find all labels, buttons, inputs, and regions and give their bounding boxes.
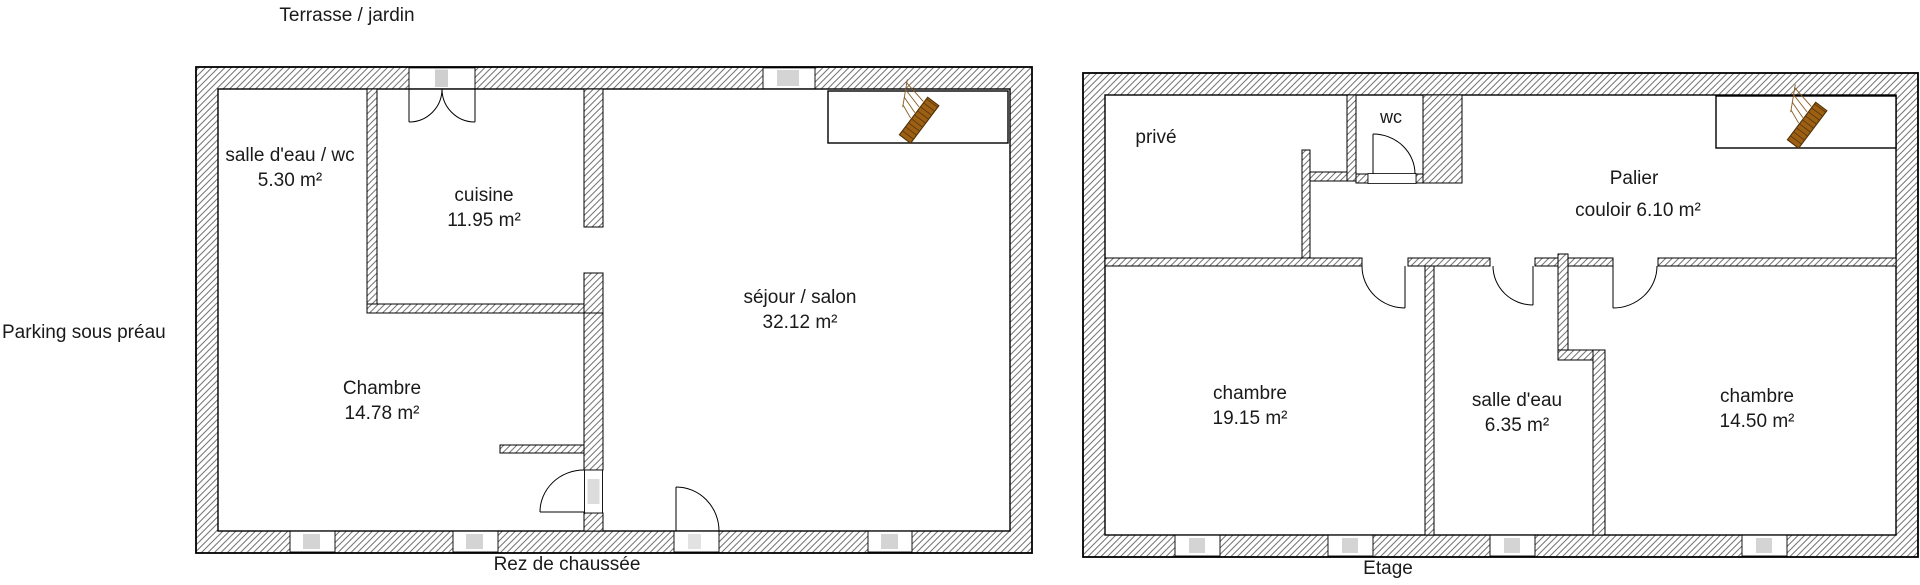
upper-floor-plan xyxy=(1083,73,1918,557)
window xyxy=(290,531,335,552)
wall xyxy=(1347,95,1356,181)
wall xyxy=(1302,150,1310,262)
wall xyxy=(1105,258,1362,266)
window xyxy=(1328,535,1373,556)
ground-floor-caption: Rez de chaussée xyxy=(494,552,641,577)
window xyxy=(1175,535,1220,556)
room-area: couloir 6.10 m² xyxy=(1575,200,1701,221)
wall xyxy=(584,89,603,227)
room-label-bedroom-gf: Chambre 14.78 m² xyxy=(343,376,421,426)
wall xyxy=(367,304,603,313)
floor-plan-page: Terrasse / jardin Parking sous préau Rez… xyxy=(0,0,1920,585)
room-name: cuisine xyxy=(454,185,513,206)
room-label-wc: wc xyxy=(1380,105,1402,130)
parking-label: Parking sous préau xyxy=(2,320,166,345)
wall xyxy=(1356,174,1368,183)
room-label-corridor: couloir 6.10 m² xyxy=(1575,198,1701,223)
room-name: chambre xyxy=(1720,386,1794,407)
upper-floor-caption: Etage xyxy=(1363,556,1413,581)
window xyxy=(453,531,498,552)
wall xyxy=(1408,258,1490,266)
wall xyxy=(584,313,603,470)
floor-plan-canvas xyxy=(0,0,1920,585)
room-name: wc xyxy=(1380,107,1402,127)
wall xyxy=(1423,95,1462,183)
wall xyxy=(1425,266,1434,535)
room-name: Palier xyxy=(1610,168,1659,189)
room-name: salle d'eau / wc xyxy=(225,145,354,166)
wall xyxy=(500,445,584,453)
room-name: salle d'eau xyxy=(1472,390,1562,411)
room-name: chambre xyxy=(1213,383,1287,404)
room-label-private: privé xyxy=(1135,125,1176,150)
wall xyxy=(1593,350,1605,535)
room-area: 19.15 m² xyxy=(1213,406,1288,431)
room-area: 14.78 m² xyxy=(343,401,421,426)
wall xyxy=(1310,172,1347,181)
room-area: 32.12 m² xyxy=(743,310,856,335)
room-label-shower-wc: salle d'eau / wc 5.30 m² xyxy=(225,143,354,193)
room-name: séjour / salon xyxy=(743,287,856,308)
wall xyxy=(1658,258,1896,266)
room-area: 6.35 m² xyxy=(1472,413,1562,438)
room-area: 11.95 m² xyxy=(447,208,521,233)
wall xyxy=(1558,254,1568,360)
wall xyxy=(1535,258,1613,266)
room-label-bedroom-2: chambre 14.50 m² xyxy=(1720,384,1795,434)
wall xyxy=(584,273,603,313)
window xyxy=(763,68,815,89)
room-name: Chambre xyxy=(343,378,421,399)
room-area: 5.30 m² xyxy=(225,168,354,193)
room-name: privé xyxy=(1135,127,1176,148)
room-label-kitchen: cuisine 11.95 m² xyxy=(447,183,521,233)
room-label-shower-up: salle d'eau 6.35 m² xyxy=(1472,388,1562,438)
ground-floor-plan xyxy=(196,67,1032,553)
room-label-landing: Palier xyxy=(1610,166,1659,191)
wall xyxy=(1416,174,1423,183)
room-area: 14.50 m² xyxy=(1720,409,1795,434)
room-label-living: séjour / salon 32.12 m² xyxy=(743,285,856,335)
window xyxy=(1490,535,1535,556)
room-label-bedroom-1: chambre 19.15 m² xyxy=(1213,381,1288,431)
wall xyxy=(367,89,377,305)
window xyxy=(1742,535,1787,556)
terrace-label: Terrasse / jardin xyxy=(279,3,414,28)
wall xyxy=(584,513,603,531)
window xyxy=(868,531,912,552)
